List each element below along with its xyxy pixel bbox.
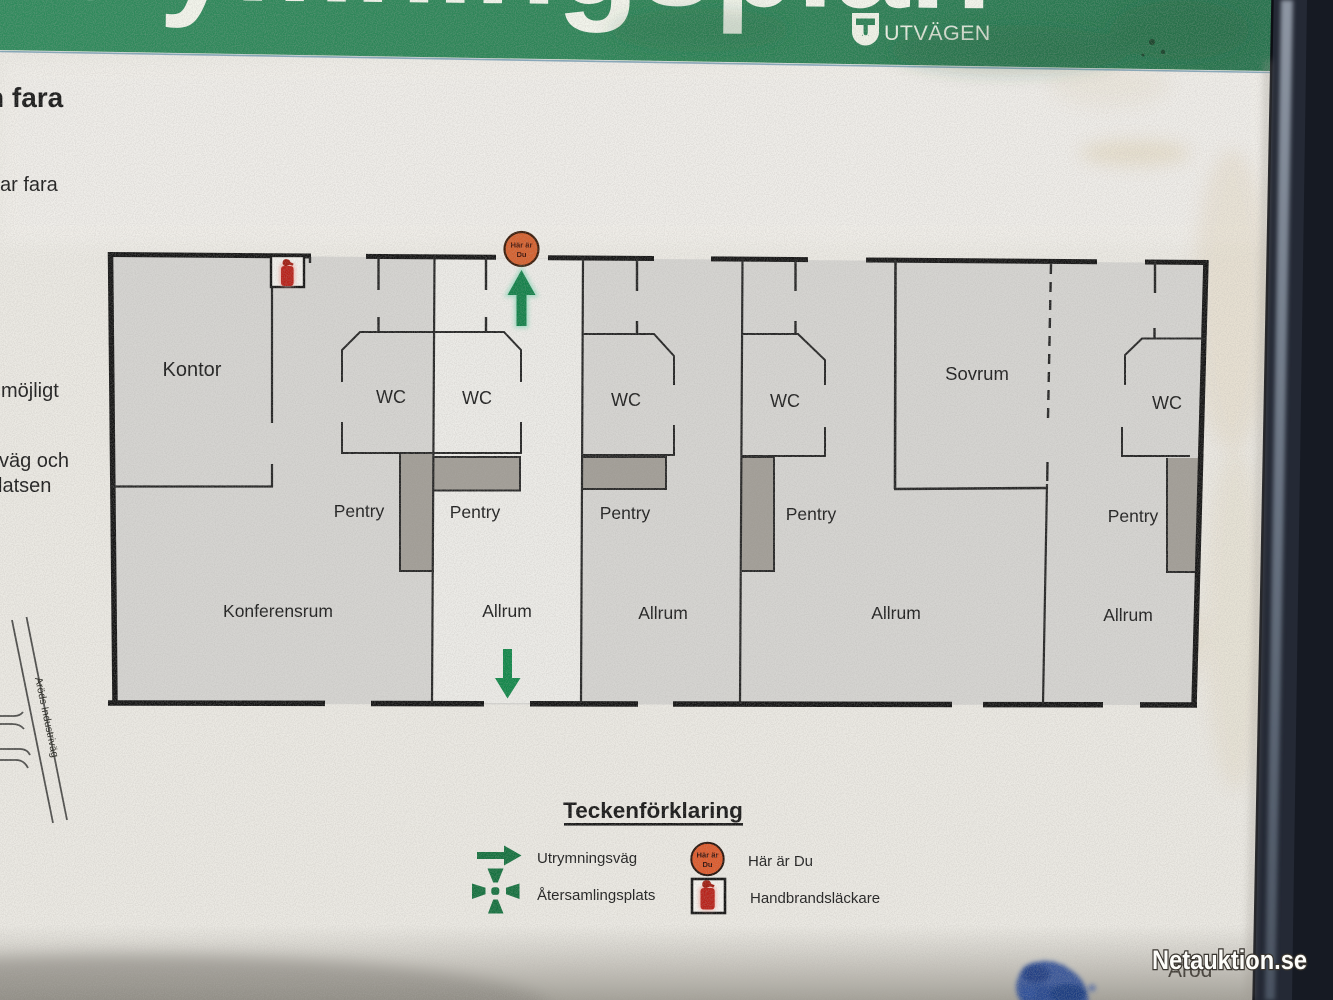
svg-text:Netauktion.se: Netauktion.se: [1152, 945, 1307, 975]
